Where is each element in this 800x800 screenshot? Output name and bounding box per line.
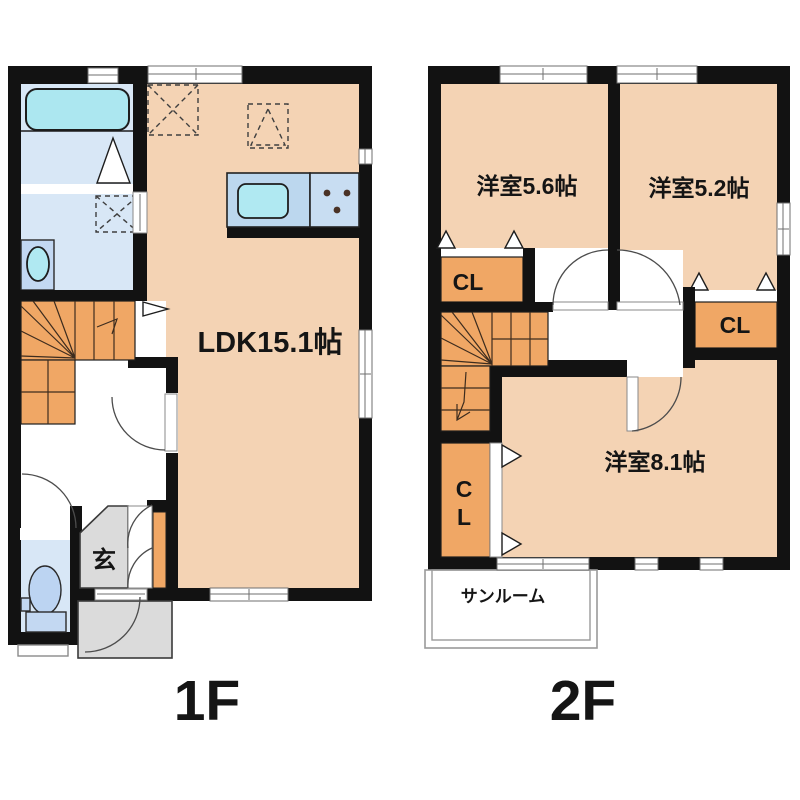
gas-stove-counter [310, 173, 359, 227]
sunroom-label: サンルーム [461, 587, 546, 606]
bedroom1-room [441, 84, 608, 250]
bathtub [26, 89, 129, 130]
hall-2f [535, 310, 683, 366]
shoe-counter [153, 512, 166, 588]
washbasin-bowl [27, 247, 49, 281]
floor-plan-svg: 玄 LDK15.1帖 [0, 0, 800, 800]
sunroom-box [425, 570, 597, 648]
floor-plan-page: 玄 LDK15.1帖 [0, 0, 800, 800]
closet-1-label: CL [453, 269, 484, 295]
closet-2-label: CL [720, 312, 751, 338]
floor-2f: CL CL [425, 66, 790, 648]
bedroom3-label: 洋室8.1帖 [605, 449, 706, 475]
outside-step [18, 645, 68, 656]
toilet-tank [26, 612, 66, 632]
entrance-label: 玄 [92, 546, 116, 574]
bedroom1-door-recess [535, 248, 608, 310]
floor-1f: 玄 LDK15.1帖 [8, 66, 372, 658]
bedroom1-label: 洋室5.6帖 [477, 173, 578, 199]
wall [8, 632, 82, 645]
stove-burner-icon [324, 190, 331, 197]
wall [8, 66, 21, 645]
sunroom: サンルーム [425, 558, 597, 648]
stove-burner-icon [334, 207, 341, 214]
stove-burner-icon [344, 190, 351, 197]
bedroom2-label: 洋室5.2帖 [649, 175, 750, 201]
kitchen-sink [238, 184, 288, 218]
toilet-bowl [29, 566, 61, 614]
bath-doorway [21, 184, 133, 194]
shoe-cabinet [128, 506, 152, 588]
floor-2f-label: 2F [550, 669, 617, 733]
ldk-label: LDK15.1帖 [197, 326, 342, 359]
floor-1f-label: 1F [174, 669, 241, 733]
porch-floor [78, 601, 172, 658]
washroom-sliding-door [133, 192, 147, 233]
toilet-doorway [20, 528, 70, 540]
kitchen-counter [227, 173, 359, 227]
